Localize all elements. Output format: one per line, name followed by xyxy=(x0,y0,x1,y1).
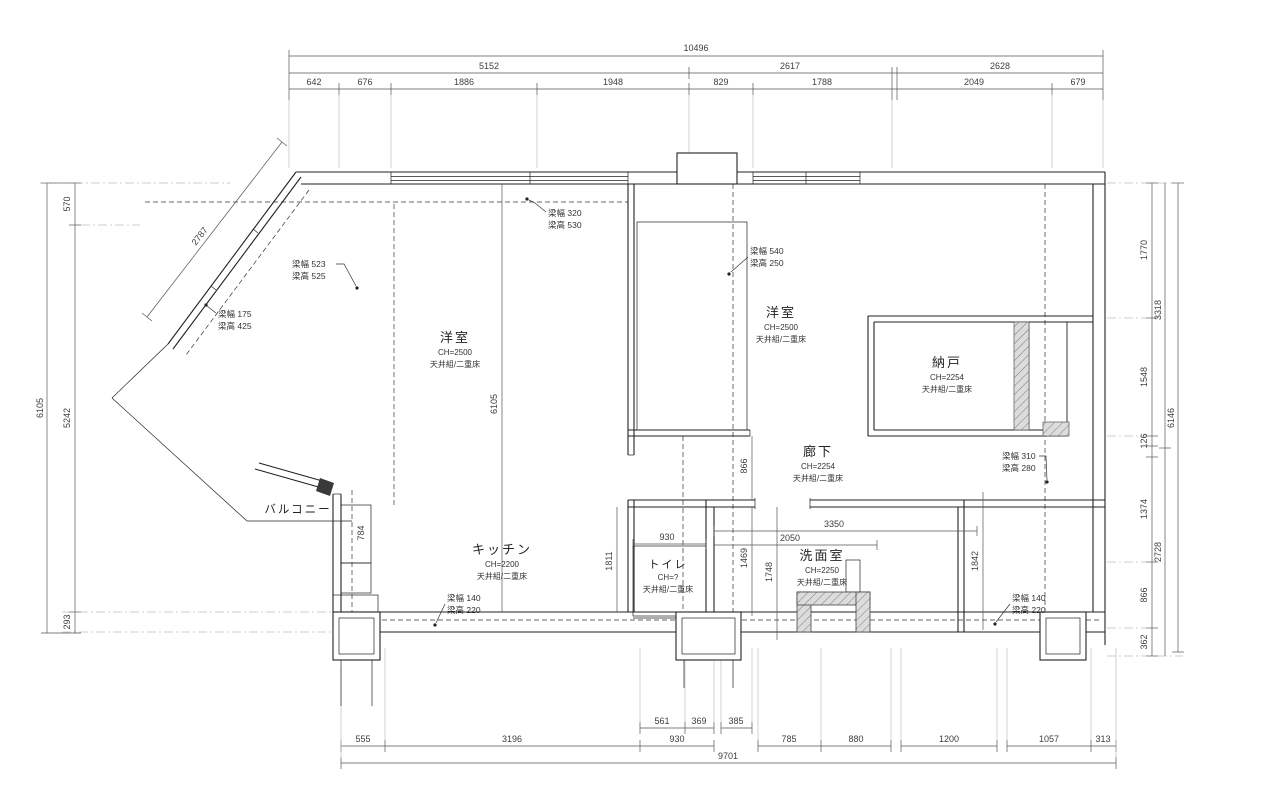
room-ch: CH=2500 xyxy=(438,348,473,357)
dim-top-829: 829 xyxy=(713,77,728,87)
dim-bot-313: 313 xyxy=(1095,734,1110,744)
room-spec: 天井組/二重床 xyxy=(430,359,480,369)
room-name: 廊下 xyxy=(803,444,833,459)
room-spec: 天井組/二重床 xyxy=(922,384,972,394)
dim-3350: 3350 xyxy=(824,519,844,529)
dim-top-642: 642 xyxy=(306,77,321,87)
dim-toilet-930: 930 xyxy=(659,532,674,542)
dim-bot-930: 930 xyxy=(669,734,684,744)
dim-balc-784: 784 xyxy=(356,525,366,540)
dim-top-2628: 2628 xyxy=(990,61,1010,71)
dim-top-2049: 2049 xyxy=(964,77,984,87)
dim-top-total: 10496 xyxy=(683,43,708,53)
room-spec: 天井組/二重床 xyxy=(793,473,843,483)
room-label-balcony: バルコニー xyxy=(264,503,331,516)
beam-height: 梁高 280 xyxy=(1002,463,1036,473)
room-name: 洋室 xyxy=(766,305,796,320)
dim-top-679: 679 xyxy=(1070,77,1085,87)
dim-left-293: 293 xyxy=(62,614,72,629)
room-ch: CH=2500 xyxy=(764,323,799,332)
dim-kitchen-1811: 1811 xyxy=(604,551,614,570)
room-spec: 天井組/二重床 xyxy=(643,584,693,594)
dim-bot-369: 369 xyxy=(691,716,706,726)
room-ch: CH=2200 xyxy=(485,560,520,569)
room-name: 納戸 xyxy=(932,355,962,370)
dim-bot-1057: 1057 xyxy=(1039,734,1059,744)
beam-height: 梁高 220 xyxy=(447,605,481,615)
dim-top-1788: 1788 xyxy=(812,77,832,87)
dim-right-362: 362 xyxy=(1139,634,1149,649)
dim-left-570: 570 xyxy=(62,196,72,211)
beam-height: 梁高 530 xyxy=(548,220,582,230)
dim-bot-561: 561 xyxy=(654,716,669,726)
paper-background xyxy=(0,0,1270,802)
room-name: 洗面室 xyxy=(799,548,844,563)
dim-1842: 1842 xyxy=(970,551,980,571)
room-ch: CH=2254 xyxy=(801,462,836,471)
dim-top-676: 676 xyxy=(357,77,372,87)
beam-width: 梁幅 175 xyxy=(218,309,252,319)
hatch-shaft-nando xyxy=(1014,322,1029,430)
room-ch: CH=2254 xyxy=(930,373,965,382)
dim-bot-880: 880 xyxy=(848,734,863,744)
dim-top-1948: 1948 xyxy=(603,77,623,87)
floor-plan-canvas: 10496 5152 2617 2628 642 676 1886 1948 8… xyxy=(0,0,1270,802)
dim-bot-1200: 1200 xyxy=(939,734,959,744)
dim-bot-385: 385 xyxy=(728,716,743,726)
beam-height: 梁高 525 xyxy=(292,271,326,281)
dim-right-1770: 1770 xyxy=(1139,240,1149,260)
dim-right-total: 6146 xyxy=(1166,408,1176,428)
dim-bot-total: 9701 xyxy=(718,751,738,761)
dim-mid-6105: 6105 xyxy=(489,394,499,414)
dim-1748: 1748 xyxy=(764,562,774,582)
dim-left-total: 6105 xyxy=(35,398,45,418)
beam-width: 梁幅 523 xyxy=(292,259,326,269)
hatch-block-nando xyxy=(1043,422,1069,436)
beam-height: 梁高 250 xyxy=(750,258,784,268)
beam-width: 梁幅 310 xyxy=(1002,451,1036,461)
beam-width: 梁幅 320 xyxy=(548,208,582,218)
room-name: トイレ xyxy=(649,559,688,571)
dim-hall-866: 866 xyxy=(739,458,749,473)
dim-1469: 1469 xyxy=(739,548,749,568)
dim-top-5152: 5152 xyxy=(479,61,499,71)
room-spec: 天井組/二重床 xyxy=(477,571,527,581)
dim-left-5242: 5242 xyxy=(62,408,72,428)
beam-width: 梁幅 140 xyxy=(1012,593,1046,603)
room-name: 洋室 xyxy=(440,330,470,345)
dim-right-866: 866 xyxy=(1139,587,1149,602)
dim-bot-3196: 3196 xyxy=(502,734,522,744)
room-spec: 天井組/二重床 xyxy=(797,577,847,587)
beam-height: 梁高 220 xyxy=(1012,605,1046,615)
dim-right-1548: 1548 xyxy=(1139,367,1149,387)
room-ch: CH=? xyxy=(658,573,679,582)
room-spec: 天井組/二重床 xyxy=(756,334,806,344)
hatch-bath-right xyxy=(856,592,870,632)
dim-2050: 2050 xyxy=(780,533,800,543)
dim-right-3318: 3318 xyxy=(1153,300,1163,320)
beam-height: 梁高 425 xyxy=(218,321,252,331)
dim-top-1886: 1886 xyxy=(454,77,474,87)
beam-width: 梁幅 540 xyxy=(750,246,784,256)
dim-top-2617: 2617 xyxy=(780,61,800,71)
dim-bot-785: 785 xyxy=(781,734,796,744)
beam-width: 梁幅 140 xyxy=(447,593,481,603)
dim-right-2728: 2728 xyxy=(1153,542,1163,562)
dim-right-126: 126 xyxy=(1139,433,1149,448)
room-ch: CH=2250 xyxy=(805,566,840,575)
dim-bot-555: 555 xyxy=(355,734,370,744)
dim-right-1374: 1374 xyxy=(1139,499,1149,519)
room-name: キッチン xyxy=(472,542,532,557)
